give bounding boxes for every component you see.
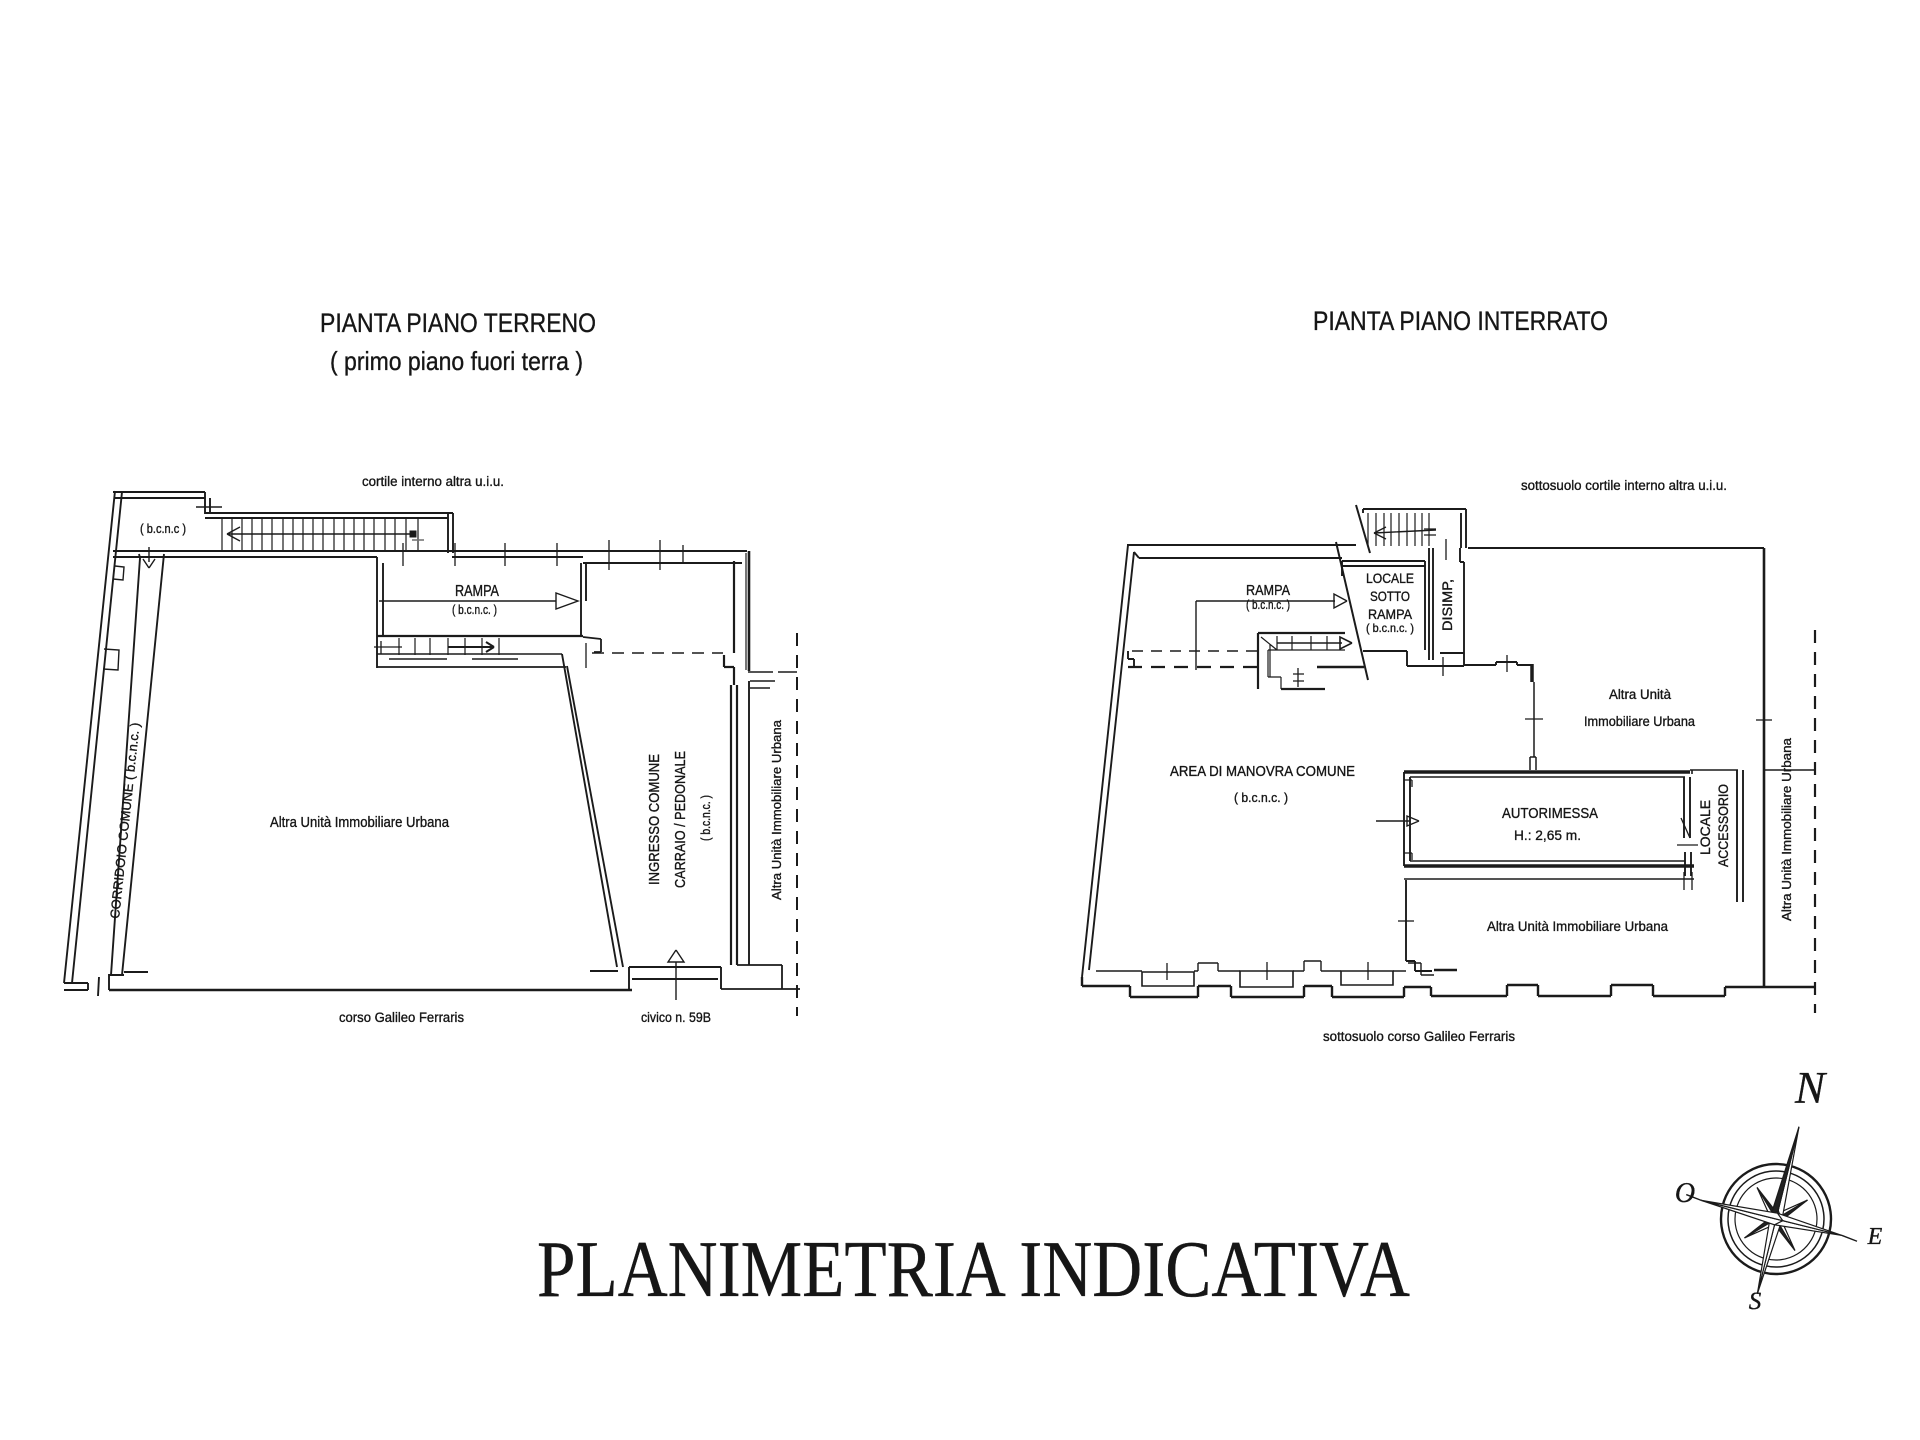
svg-text:H.: 2,65 m.: H.: 2,65 m. (1514, 827, 1581, 843)
svg-text:E: E (1867, 1224, 1883, 1250)
svg-text:PIANTA PIANO TERRENO: PIANTA PIANO TERRENO (320, 308, 596, 338)
svg-text:PIANTA PIANO INTERRATO: PIANTA PIANO INTERRATO (1313, 306, 1608, 336)
svg-text:DISIMP,: DISIMP, (1440, 579, 1455, 631)
svg-text:CARRAIO / PEDONALE: CARRAIO / PEDONALE (673, 751, 689, 888)
svg-text:( b.c.n.c. ): ( b.c.n.c. ) (452, 602, 497, 617)
svg-text:( b.c.n.c. ): ( b.c.n.c. ) (1366, 621, 1414, 635)
svg-text:Altra Unità Immobiliare Urb: Altra Unità Immobiliare Urbana (1487, 918, 1668, 934)
svg-text:LOCALE: LOCALE (1698, 800, 1713, 855)
svg-text:cortile interno altra u.i.u: cortile interno altra u.i.u. (362, 474, 504, 489)
svg-text:sottosuolo corso Galileo Fe: sottosuolo corso Galileo Ferraris (1323, 1029, 1515, 1044)
svg-text:corso Galileo Ferraris: corso Galileo Ferraris (339, 1010, 464, 1025)
svg-text:Altra Unità: Altra Unità (1609, 687, 1671, 702)
svg-text:ACCESSORIO: ACCESSORIO (1716, 784, 1731, 867)
svg-text:S: S (1749, 1288, 1762, 1315)
svg-text:Immobiliare Urbana: Immobiliare Urbana (1584, 714, 1695, 729)
svg-text:Altra Unità Immobiliare Urb: Altra Unità Immobiliare Urbana (769, 719, 784, 900)
svg-text:civico n. 59B: civico n. 59B (641, 1010, 711, 1025)
svg-text:Altra Unità Immobiliare Urb: Altra Unità Immobiliare Urbana (270, 815, 450, 831)
svg-text:O: O (1675, 1178, 1695, 1209)
svg-text:N: N (1794, 1063, 1828, 1113)
svg-text:sottosuolo cortile interno: sottosuolo cortile interno altra u.i.u. (1521, 478, 1727, 493)
svg-text:AREA DI MANOVRA COMUNE: AREA DI MANOVRA COMUNE (1170, 764, 1355, 780)
svg-text:INGRESSO COMUNE: INGRESSO COMUNE (647, 754, 663, 885)
svg-text:SOTTO: SOTTO (1370, 588, 1410, 604)
svg-text:Altra Unità Immobiliare Urb: Altra Unità Immobiliare Urbana (1779, 737, 1794, 921)
svg-text:RAMPA: RAMPA (1368, 606, 1413, 622)
svg-text:( b.c.n.c ): ( b.c.n.c ) (140, 521, 186, 536)
svg-text:RAMPA: RAMPA (455, 583, 500, 600)
svg-text:RAMPA: RAMPA (1246, 582, 1290, 599)
svg-text:( primo piano fuori terra ): ( primo piano fuori terra ) (330, 346, 583, 376)
svg-text:( b.c.n.c. ): ( b.c.n.c. ) (1246, 598, 1290, 612)
svg-text:AUTORIMESSA: AUTORIMESSA (1502, 805, 1598, 822)
svg-text:( b.c.n.c. ): ( b.c.n.c. ) (699, 795, 713, 841)
svg-text:LOCALE: LOCALE (1366, 570, 1414, 586)
svg-text:PLANIMETRIA INDICATIVA: PLANIMETRIA INDICATIVA (537, 1224, 1410, 1314)
svg-text:( b.c.n.c. ): ( b.c.n.c. ) (1234, 790, 1288, 805)
